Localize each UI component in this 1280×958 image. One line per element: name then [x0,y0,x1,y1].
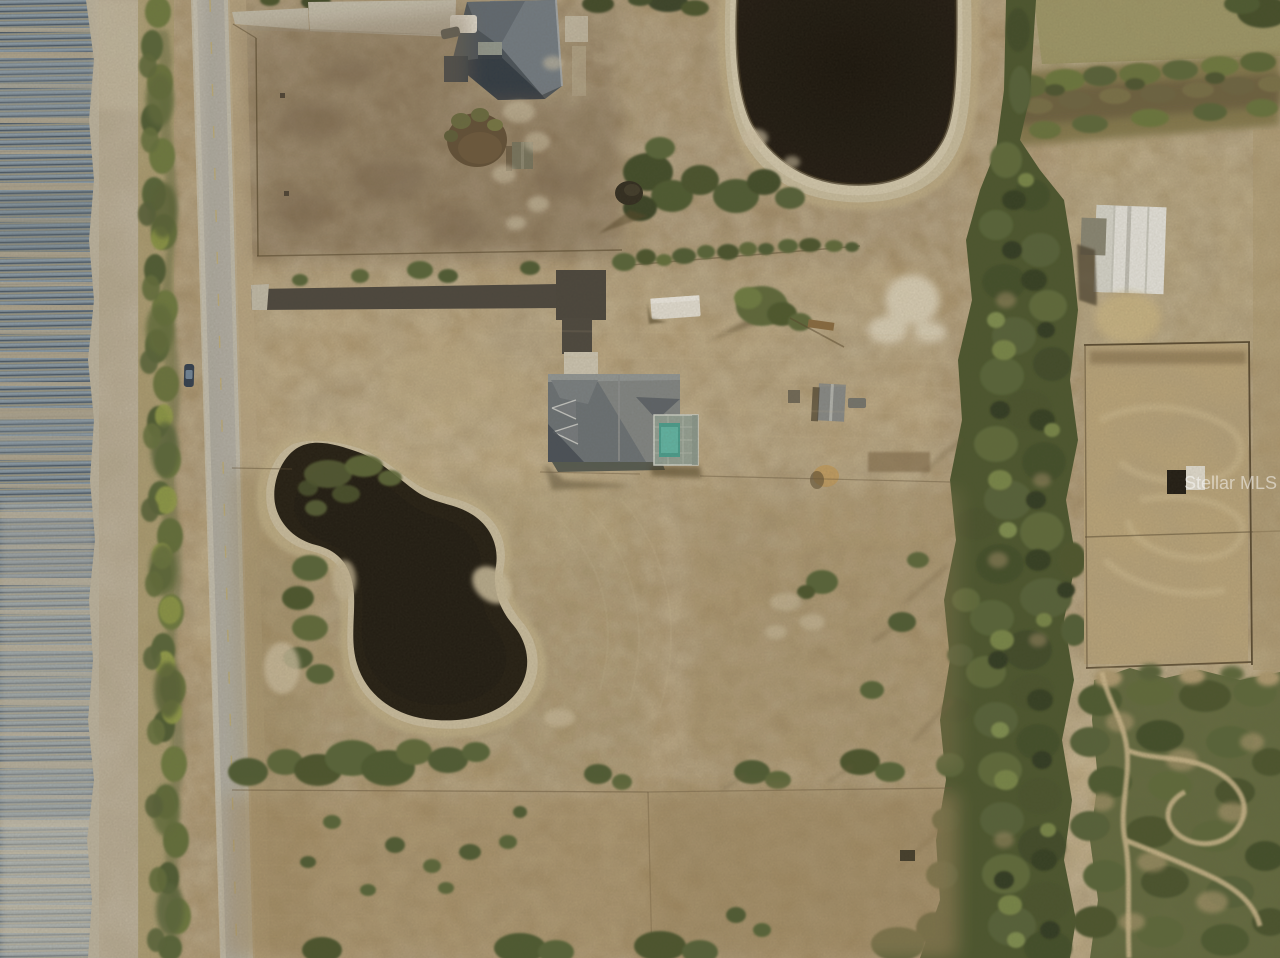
svg-text:Stellar MLS: Stellar MLS [1184,473,1277,493]
